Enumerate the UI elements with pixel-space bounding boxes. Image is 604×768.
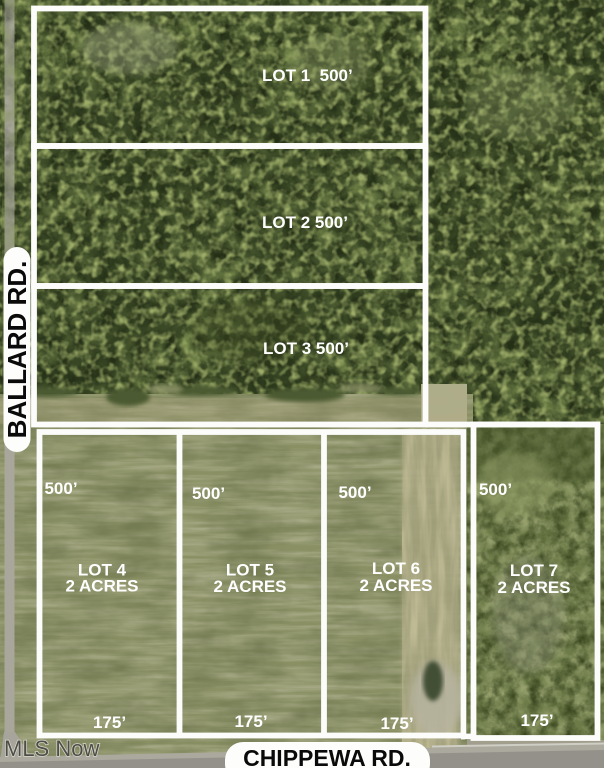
svg-text:2 ACRES: 2 ACRES <box>359 576 432 595</box>
svg-text:175’: 175’ <box>93 713 126 732</box>
svg-text:LOT 2 500’: LOT 2 500’ <box>262 213 348 232</box>
svg-text:2 ACRES: 2 ACRES <box>65 577 138 596</box>
svg-text:LOT 3 500’: LOT 3 500’ <box>263 339 349 358</box>
svg-text:2 ACRES: 2 ACRES <box>497 578 570 597</box>
svg-text:500’: 500’ <box>44 479 77 498</box>
svg-text:CHIPPEWA RD.: CHIPPEWA RD. <box>243 745 411 768</box>
svg-text:500’: 500’ <box>479 480 512 499</box>
svg-text:175’: 175’ <box>380 714 413 733</box>
svg-text:MLS Now: MLS Now <box>4 736 99 761</box>
svg-text:500’: 500’ <box>192 484 225 503</box>
svg-text:BALLARD RD.: BALLARD RD. <box>2 261 32 439</box>
svg-text:175’: 175’ <box>234 712 267 731</box>
svg-text:500’: 500’ <box>338 483 371 502</box>
svg-text:2 ACRES: 2 ACRES <box>213 577 286 596</box>
svg-text:LOT 1 500’: LOT 1 500’ <box>262 66 353 85</box>
svg-text:175’: 175’ <box>520 711 553 730</box>
